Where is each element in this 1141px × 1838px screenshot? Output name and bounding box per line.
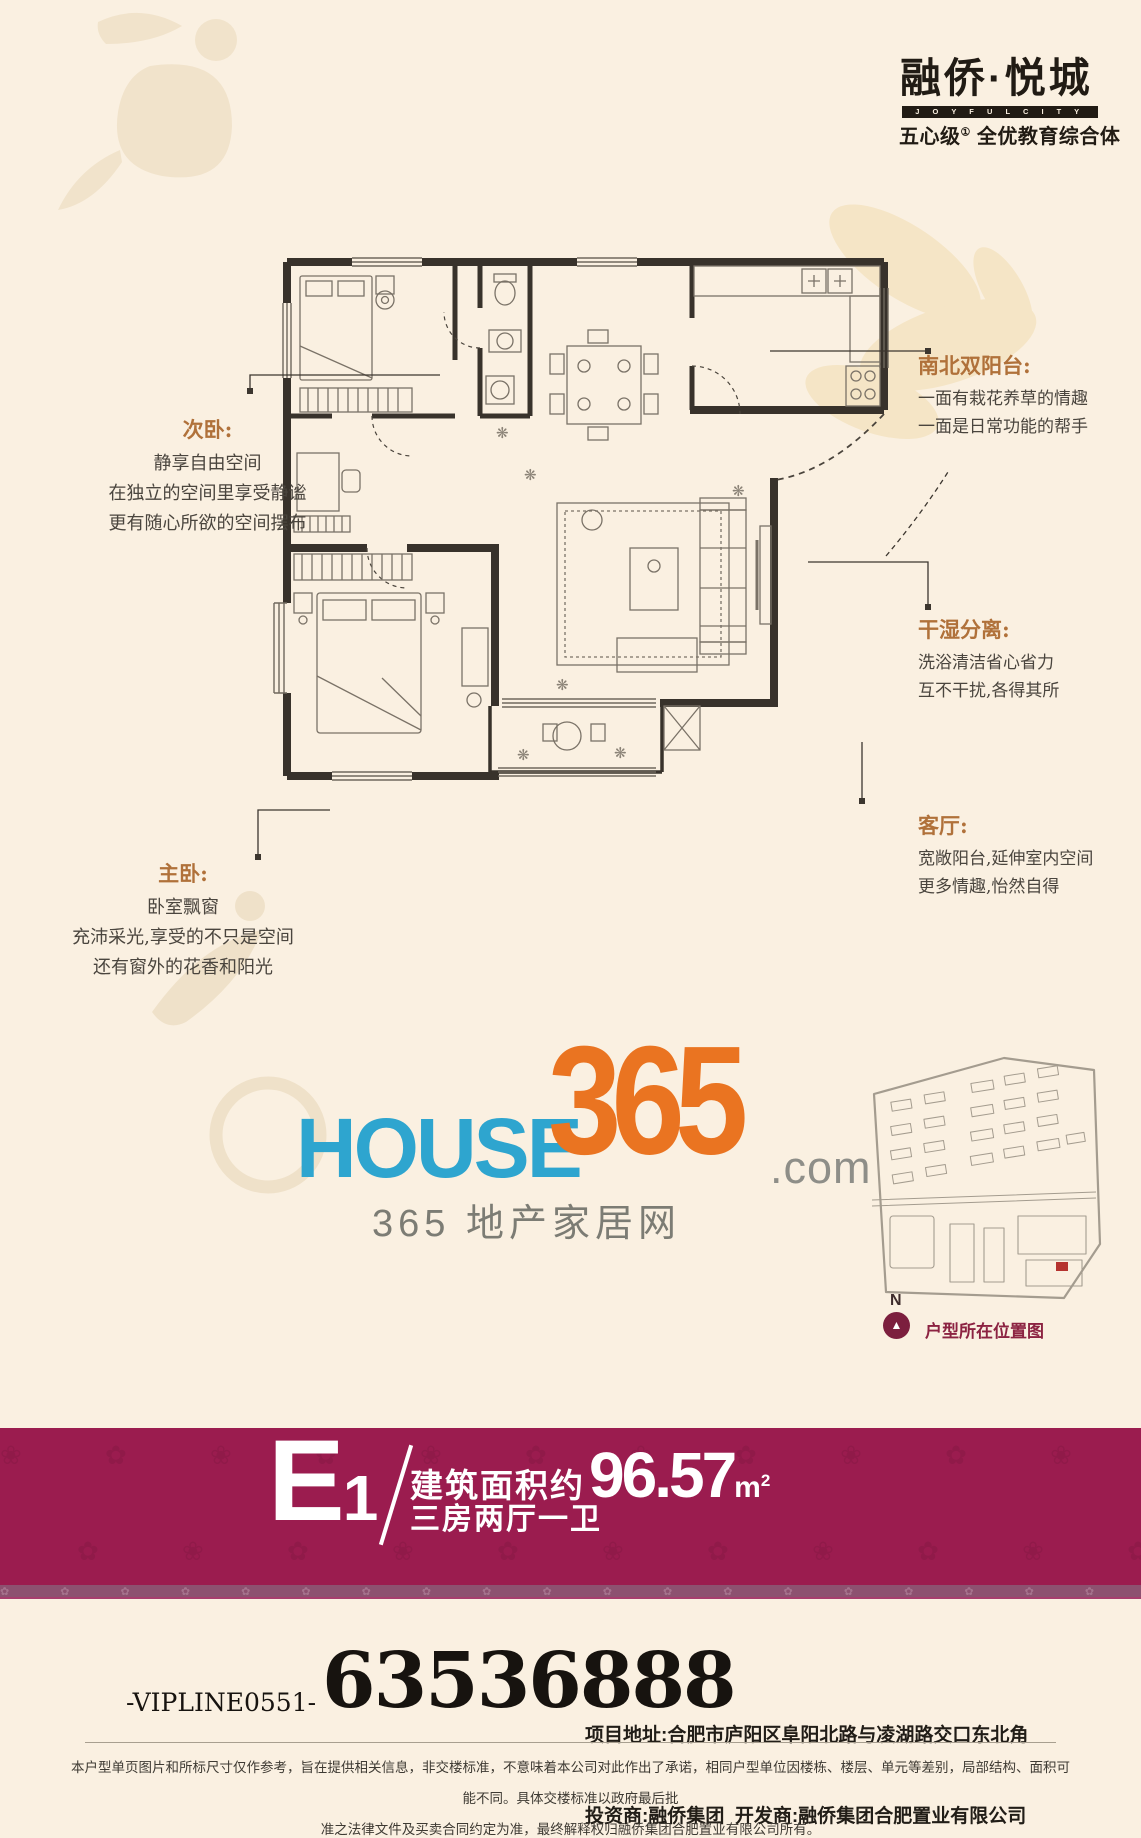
north-arrow-icon: ▲ — [883, 1312, 910, 1339]
house365-logo-house: HOUSE — [296, 1106, 580, 1190]
callout-secondary-bedroom: 次卧: 静享自由空间 在独立的空间里享受静谧 更有随心所欲的空间摆布 — [95, 414, 320, 539]
site-location-map — [858, 1048, 1110, 1310]
callout-line: 更有随心所欲的空间摆布 — [95, 509, 320, 539]
unit-layout: 三房两厅一卫 — [410, 1494, 602, 1538]
leader-dot — [859, 798, 865, 804]
compass-letter: N — [890, 1292, 902, 1310]
callout-line: 还有窗外的花香和阳光 — [52, 953, 314, 983]
strip-pattern-row: ✿ ✿ ✿ ✿ ✿ ✿ ✿ ✿ ✿ ✿ ✿ ✿ ✿ ✿ ✿ ✿ ✿ ✿ ✿ ✿ … — [0, 1585, 1141, 1597]
callout-line: 卧室飘窗 — [52, 893, 314, 923]
callout-line: 洗浴清洁省心省力 — [918, 649, 1138, 677]
leader-dot — [247, 388, 253, 394]
band-hairline — [0, 1597, 1141, 1599]
callout-title: 次卧: — [95, 414, 320, 444]
disclaimer-divider — [85, 1742, 1056, 1743]
site-map-caption: 户型所在位置图 — [925, 1317, 1044, 1342]
area-unit-sup: 2 — [761, 1471, 770, 1490]
callout-title: 客厅: — [918, 810, 1138, 840]
area-unit-m: m — [734, 1471, 761, 1504]
callout-dry-wet-separation: 干湿分离: 洗浴清洁省心省力 互不干扰,各得其所 — [918, 614, 1138, 705]
unit-location-marker — [1056, 1262, 1068, 1271]
disclaimer-line: 准之法律文件及买卖合同约定为准，最终解释权归融侨集团合肥置业有限公司所有。 — [70, 1814, 1071, 1838]
callout-line: 在独立的空间里享受静谧 — [95, 479, 320, 509]
disclaimer-line: 本户型单页图片和所标尺寸仅作参考，旨在提供相关信息，非交楼标准，不意味着本公司对… — [70, 1752, 1071, 1814]
callout-line: 更多情趣,怡然自得 — [918, 873, 1138, 901]
floorplan-poster: 融侨·悦城 J O Y F U L C I T Y 五心级① 全优教育综合体 — [0, 0, 1141, 1838]
unit-number: 1 — [343, 1462, 377, 1534]
leader-dot — [925, 604, 931, 610]
project-address: 项目地址:合肥市庐阳区阜阳北路与凌湖路交口东北角 — [585, 1722, 1065, 1749]
house365-logo-subtitle: 365 地产家居网 — [372, 1192, 681, 1247]
unit-letter: E — [268, 1417, 343, 1545]
callout-line: 一面有栽花养草的情趣 — [918, 385, 1138, 413]
area-unit: m2 — [734, 1471, 770, 1505]
callout-line: 一面是日常功能的帮手 — [918, 413, 1138, 441]
callout-title: 主卧: — [52, 858, 314, 888]
callout-living-room: 客厅: 宽敞阳台,延伸室内空间 更多情趣,怡然自得 — [918, 810, 1138, 901]
vip-line-label: -VIPLINE0551- — [126, 1688, 316, 1717]
band-bottom-strip: ✿ ✿ ✿ ✿ ✿ ✿ ✿ ✿ ✿ ✿ ✿ ✿ ✿ ✿ ✿ ✿ ✿ ✿ ✿ ✿ … — [0, 1585, 1141, 1597]
callout-north-south-balcony: 南北双阳台: 一面有栽花养草的情趣 一面是日常功能的帮手 — [918, 350, 1138, 441]
band-pattern-row: ❀ ✿ ❀ ✿ ❀ ✿ ❀ ✿ ❀ ✿ ❀ ✿ ❀ ✿ ❀ ✿ ❀ ✿ ❀ — [0, 1536, 1113, 1567]
house365-logo-365: 365 — [548, 1024, 738, 1178]
callout-line: 互不干扰,各得其所 — [918, 677, 1138, 705]
callout-master-bedroom: 主卧: 卧室飘窗 充沛采光,享受的不只是空间 还有窗外的花香和阳光 — [52, 858, 314, 983]
callout-title: 干湿分离: — [918, 614, 1138, 644]
callout-title: 南北双阳台: — [918, 350, 1138, 380]
disclaimer-text: 本户型单页图片和所标尺寸仅作参考，旨在提供相关信息，非交楼标准，不意味着本公司对… — [70, 1752, 1071, 1838]
area-value: 96.57 — [589, 1438, 734, 1512]
house365-logo-dotcom: .com — [770, 1142, 872, 1194]
callout-line: 静享自由空间 — [95, 449, 320, 479]
callout-line: 宽敞阳台,延伸室内空间 — [918, 845, 1138, 873]
unit-code: E1 — [268, 1424, 376, 1539]
callout-line: 充沛采光,享受的不只是空间 — [52, 923, 314, 953]
